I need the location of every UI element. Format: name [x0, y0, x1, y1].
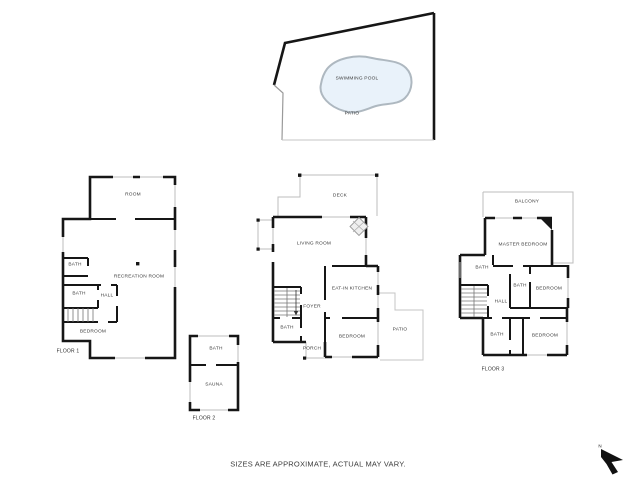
- disclaimer-text: SIZES ARE APPROXIMATE, ACTUAL MAY VARY.: [230, 460, 406, 469]
- floor2-deck-label: DECK: [333, 195, 347, 200]
- floor3-hall-label: HALL: [495, 301, 508, 306]
- north-label: N: [598, 444, 601, 449]
- floor2-foyer-label: FOYER: [303, 306, 321, 311]
- floorplan-drawing: [0, 0, 640, 480]
- floor3-bath-lower-label: BATH: [490, 334, 503, 339]
- swimming-pool-label: SWIMMING POOL: [336, 78, 379, 83]
- floor2-bedroom-label: BEDROOM: [339, 336, 365, 341]
- floor1-room-label: ROOM: [125, 194, 141, 199]
- floor1-bath-lower-label: BATH: [72, 293, 85, 298]
- floor2-kitchen-label: EAT-IN KITCHEN: [332, 288, 372, 293]
- floor3-balcony-label: BALCONY: [515, 201, 539, 206]
- floor3-master-bedroom-label: MASTER BEDROOM: [499, 244, 548, 249]
- floor2-patio-label: PATIO: [393, 329, 408, 334]
- floor1-bath-upper-label: BATH: [68, 264, 81, 269]
- floor2-bath-label: BATH: [280, 327, 293, 332]
- floor3-plan: [460, 192, 573, 355]
- north-arrow-icon: [601, 449, 623, 475]
- pool-shape: [321, 56, 412, 112]
- floor2-living-room-label: LIVING ROOM: [297, 243, 331, 248]
- site-patio-label: PATIO: [345, 113, 360, 118]
- floor2-porch-label: PORCH: [303, 348, 321, 353]
- floor3-bedroom-lower-label: BEDROOM: [532, 335, 558, 340]
- floor1-recreation-room-label: RECREATION ROOM: [114, 276, 164, 281]
- floor1-bedroom-label: BEDROOM: [80, 331, 106, 336]
- floor1-title: FLOOR 1: [57, 350, 80, 355]
- floor2-title: FLOOR 2: [193, 417, 216, 422]
- floor2-annex-sauna-label: SAUNA: [205, 384, 223, 389]
- floor3-bedroom-upper-label: BEDROOM: [536, 288, 562, 293]
- floor3-bath-middle-label: BATH: [513, 285, 526, 290]
- floor3-bath-left-label: BATH: [475, 267, 488, 272]
- floor3-title: FLOOR 3: [482, 368, 505, 373]
- floorplan-page: SWIMMING POOL PATIO ROOM BATH BATH HALL …: [0, 0, 640, 480]
- floor2-annex-bath-label: BATH: [209, 348, 222, 353]
- floor1-hall-label: HALL: [101, 295, 114, 300]
